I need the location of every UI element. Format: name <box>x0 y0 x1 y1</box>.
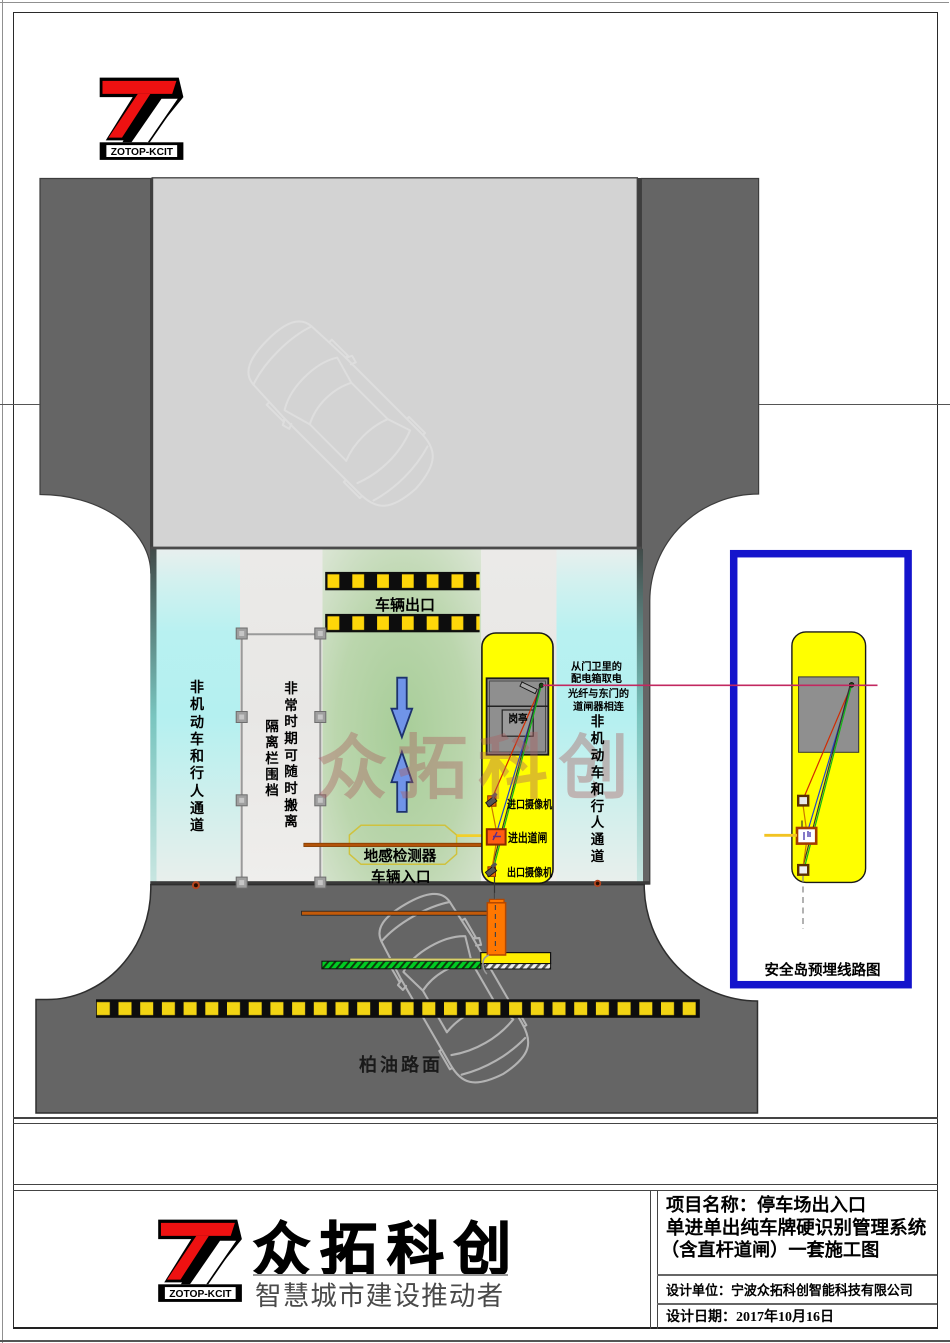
svg-text:ZOTOP-KCIT: ZOTOP-KCIT <box>110 147 173 158</box>
svg-text:ZOTOP-KCIT: ZOTOP-KCIT <box>169 1289 232 1300</box>
